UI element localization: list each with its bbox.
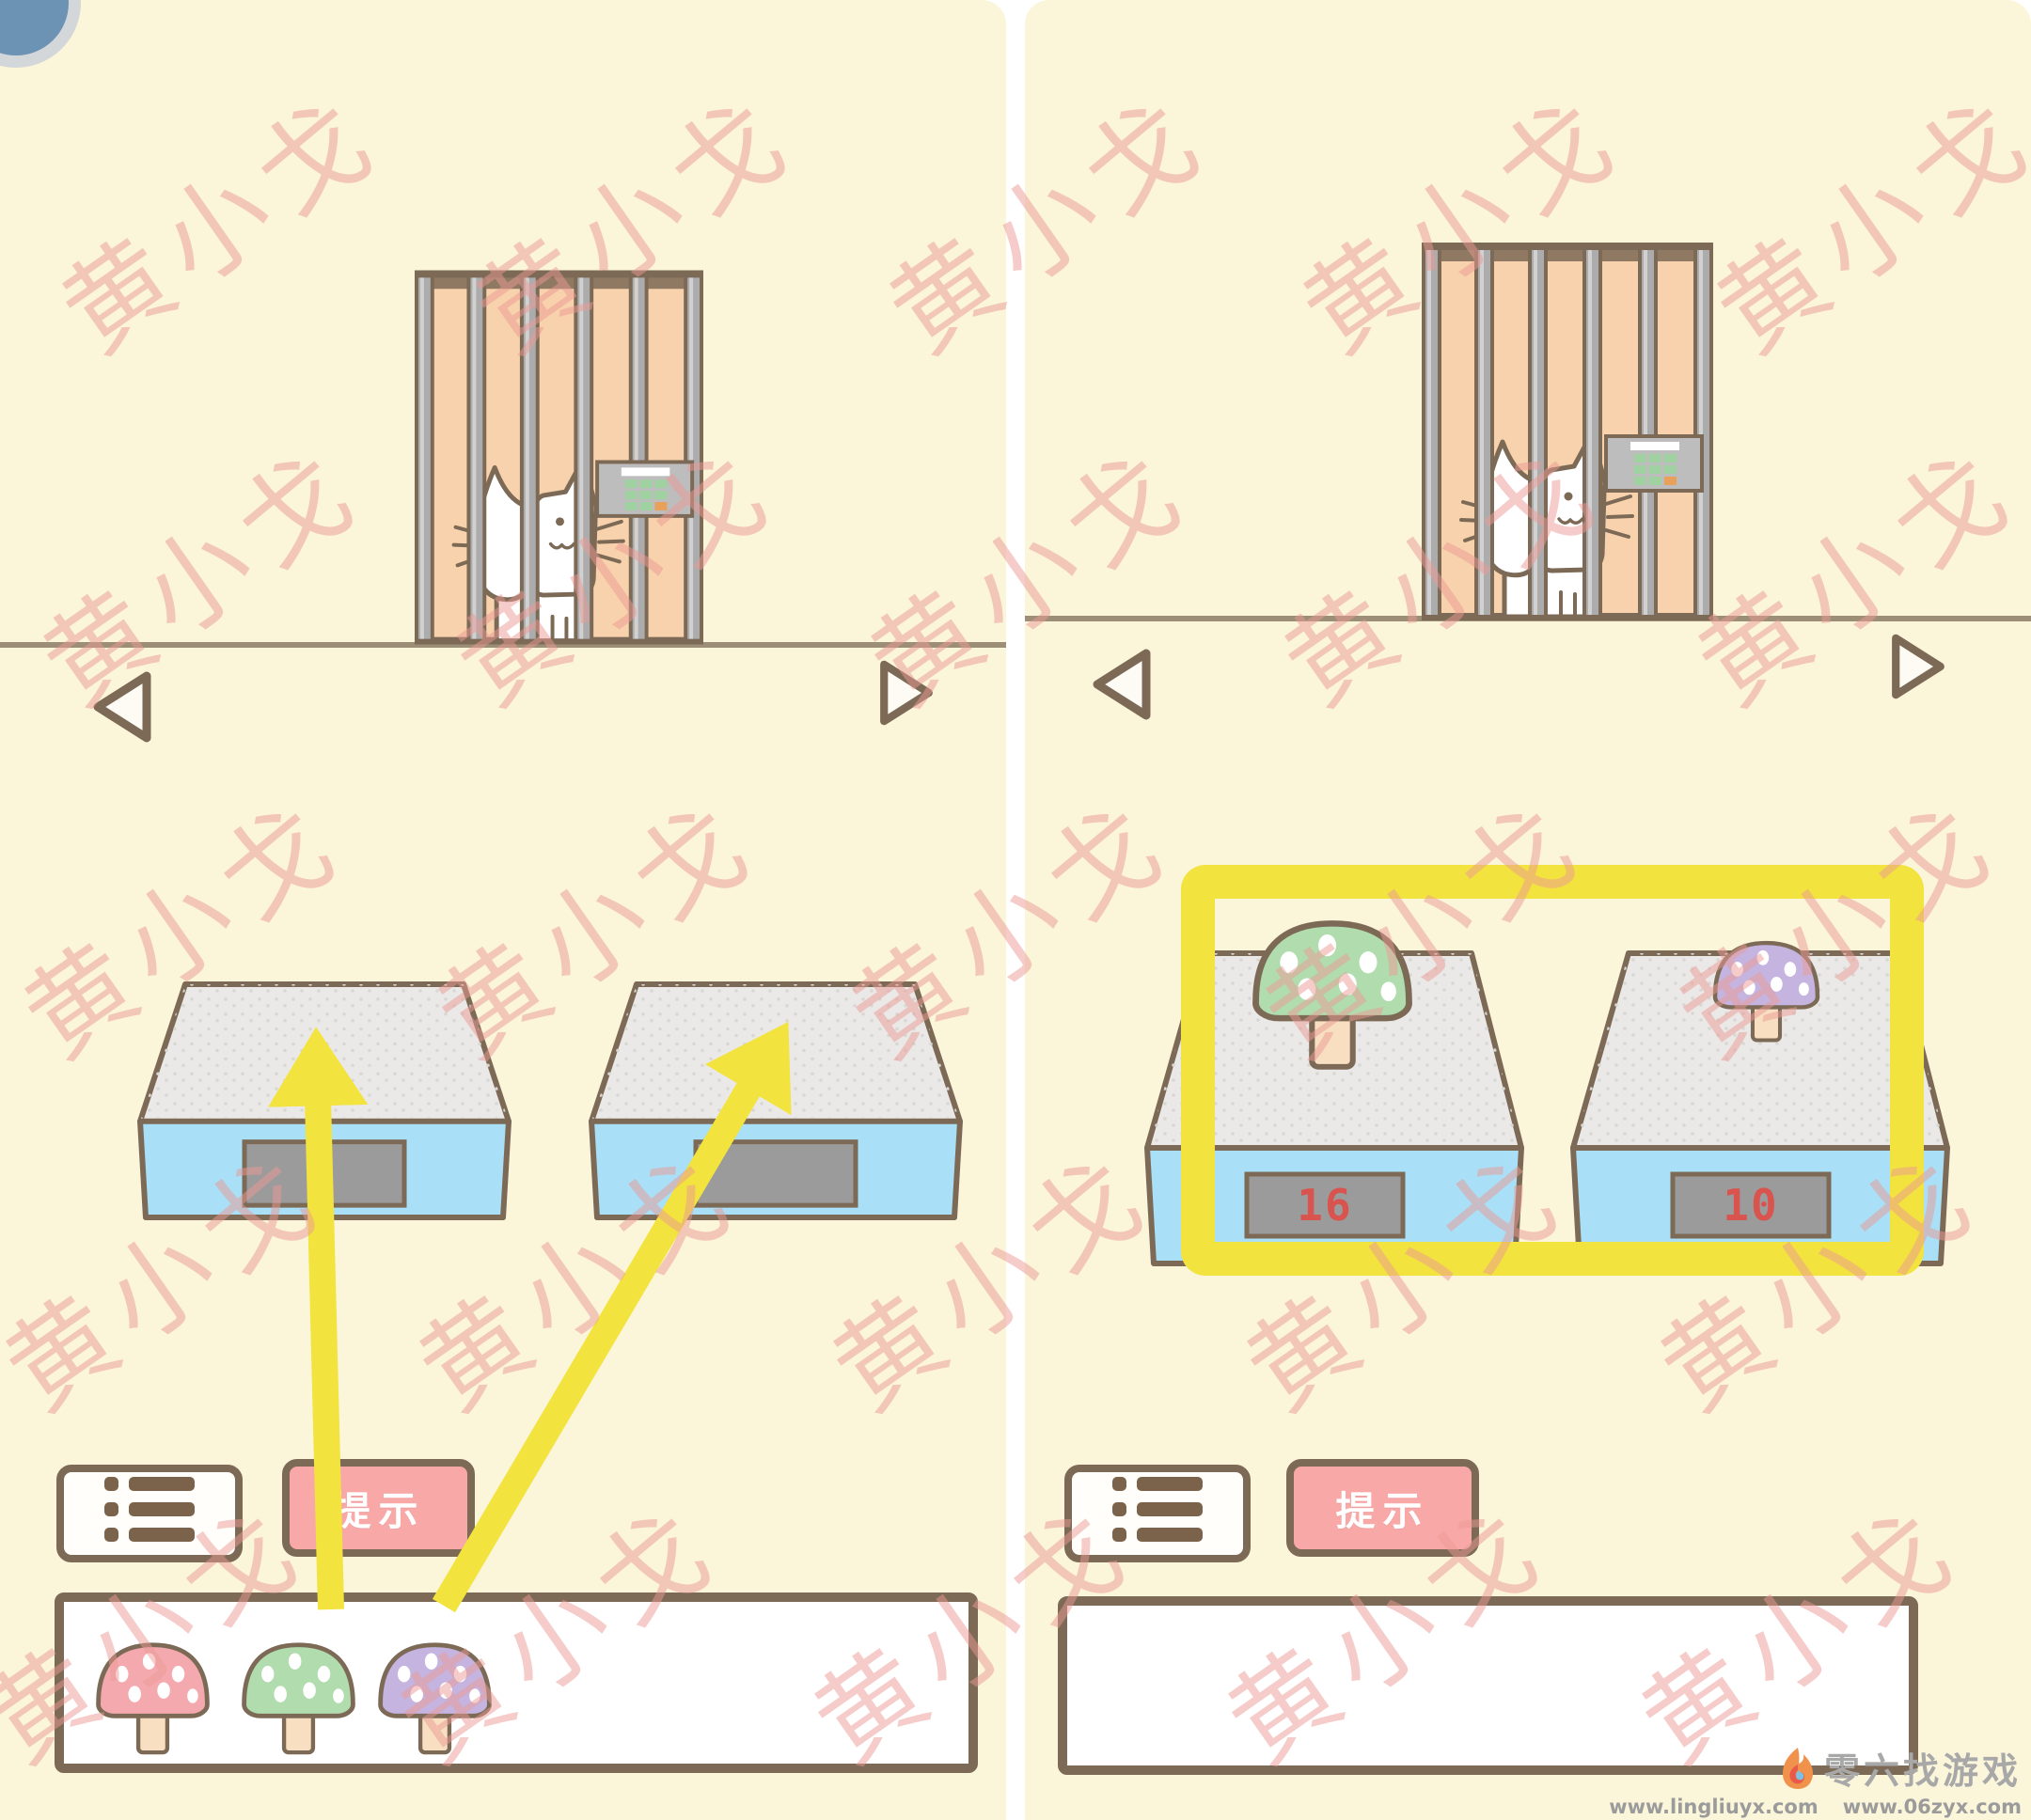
nav-previous-button[interactable]	[1089, 647, 1155, 722]
site-brand: 零六找游戏	[1824, 1742, 2022, 1794]
nav-next-button[interactable]	[1888, 632, 1948, 701]
site-logo: 零六找游戏 www.lingliuyx.com www.06zyx.com	[1609, 1742, 2022, 1818]
panel-step2: 16 10 提示	[1025, 0, 2031, 1820]
walkthrough-screenshot: 提示	[0, 0, 2031, 1820]
green-mushroom[interactable]	[235, 1638, 362, 1756]
nav-next-button[interactable]	[876, 658, 937, 728]
triangle-left-icon	[89, 669, 155, 745]
cat-cage[interactable]	[415, 268, 703, 647]
triangle-right-icon	[1888, 632, 1948, 701]
triangle-left-icon	[1089, 647, 1155, 722]
scale-1-readout	[244, 1143, 404, 1207]
list-icon	[1112, 1477, 1203, 1550]
hint-button[interactable]: 提示	[1286, 1459, 1479, 1557]
list-icon	[104, 1477, 195, 1550]
panel-step1: 提示	[0, 0, 1006, 1820]
hint-button-label: 提示	[331, 1480, 425, 1537]
scale-2-readout	[696, 1143, 856, 1207]
purple-mushroom[interactable]	[371, 1638, 498, 1756]
flame-icon	[1779, 1746, 1817, 1791]
item-list-button[interactable]	[1064, 1465, 1251, 1562]
hint-button-label: 提示	[1335, 1480, 1429, 1537]
tutorial-highlight-box	[1181, 865, 1924, 1276]
inventory-bar	[55, 1592, 978, 1773]
nav-previous-button[interactable]	[89, 669, 155, 745]
triangle-right-icon	[876, 658, 937, 728]
pink-mushroom[interactable]	[89, 1638, 216, 1756]
hint-button[interactable]: 提示	[282, 1459, 475, 1557]
site-url-2: www.06zyx.com	[1843, 1796, 2022, 1818]
cat-cage[interactable]	[1422, 243, 1713, 620]
site-url-1: www.lingliuyx.com	[1609, 1796, 1818, 1818]
item-list-button[interactable]	[56, 1465, 243, 1562]
